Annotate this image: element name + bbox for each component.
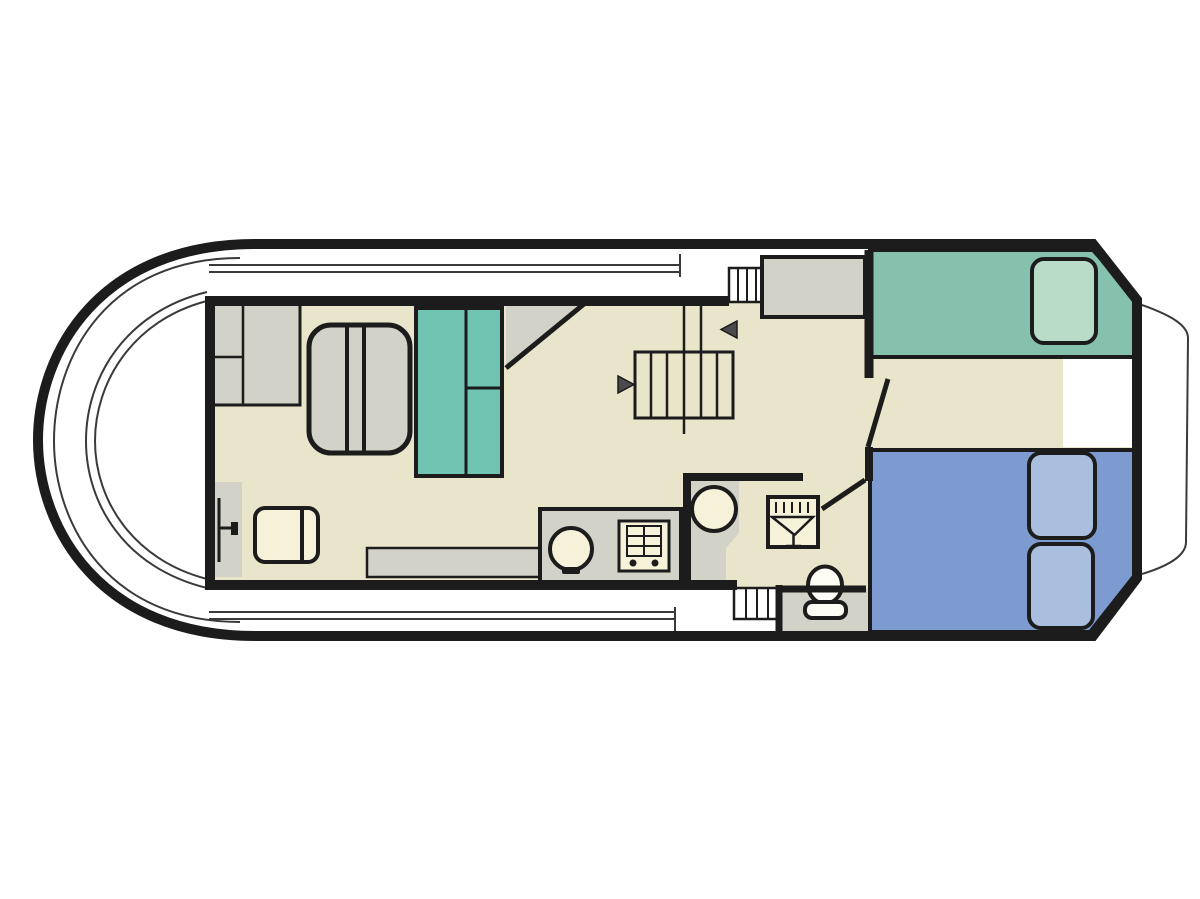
stove-knob-left <box>630 560 637 567</box>
double-bed-pillow-bottom <box>1029 544 1093 628</box>
sink-tap <box>562 567 580 574</box>
bow-coaming-outer-line <box>86 292 207 588</box>
stove-knob-right <box>652 560 659 567</box>
bench-sofa <box>367 548 545 577</box>
deck-plan-drawing <box>0 0 1200 899</box>
swim-platform-outline <box>1142 305 1188 574</box>
sideboard <box>762 257 865 317</box>
deck-plan <box>0 0 1200 899</box>
wardrobe <box>416 308 502 476</box>
helm-door-handle-knob <box>231 522 238 535</box>
toilet-icon <box>808 567 842 604</box>
double-bed-pillow-top <box>1029 453 1095 538</box>
single-bed-pillow <box>1032 259 1096 343</box>
helm-seat <box>255 508 318 562</box>
storage-cabinet <box>211 303 300 405</box>
dinette-table <box>309 325 410 453</box>
washbasin-icon <box>692 487 736 531</box>
stern-door-opening <box>1063 352 1135 447</box>
toilet-base <box>805 602 846 618</box>
bow-coaming-inner-line <box>95 301 207 579</box>
sink-icon <box>550 528 592 570</box>
